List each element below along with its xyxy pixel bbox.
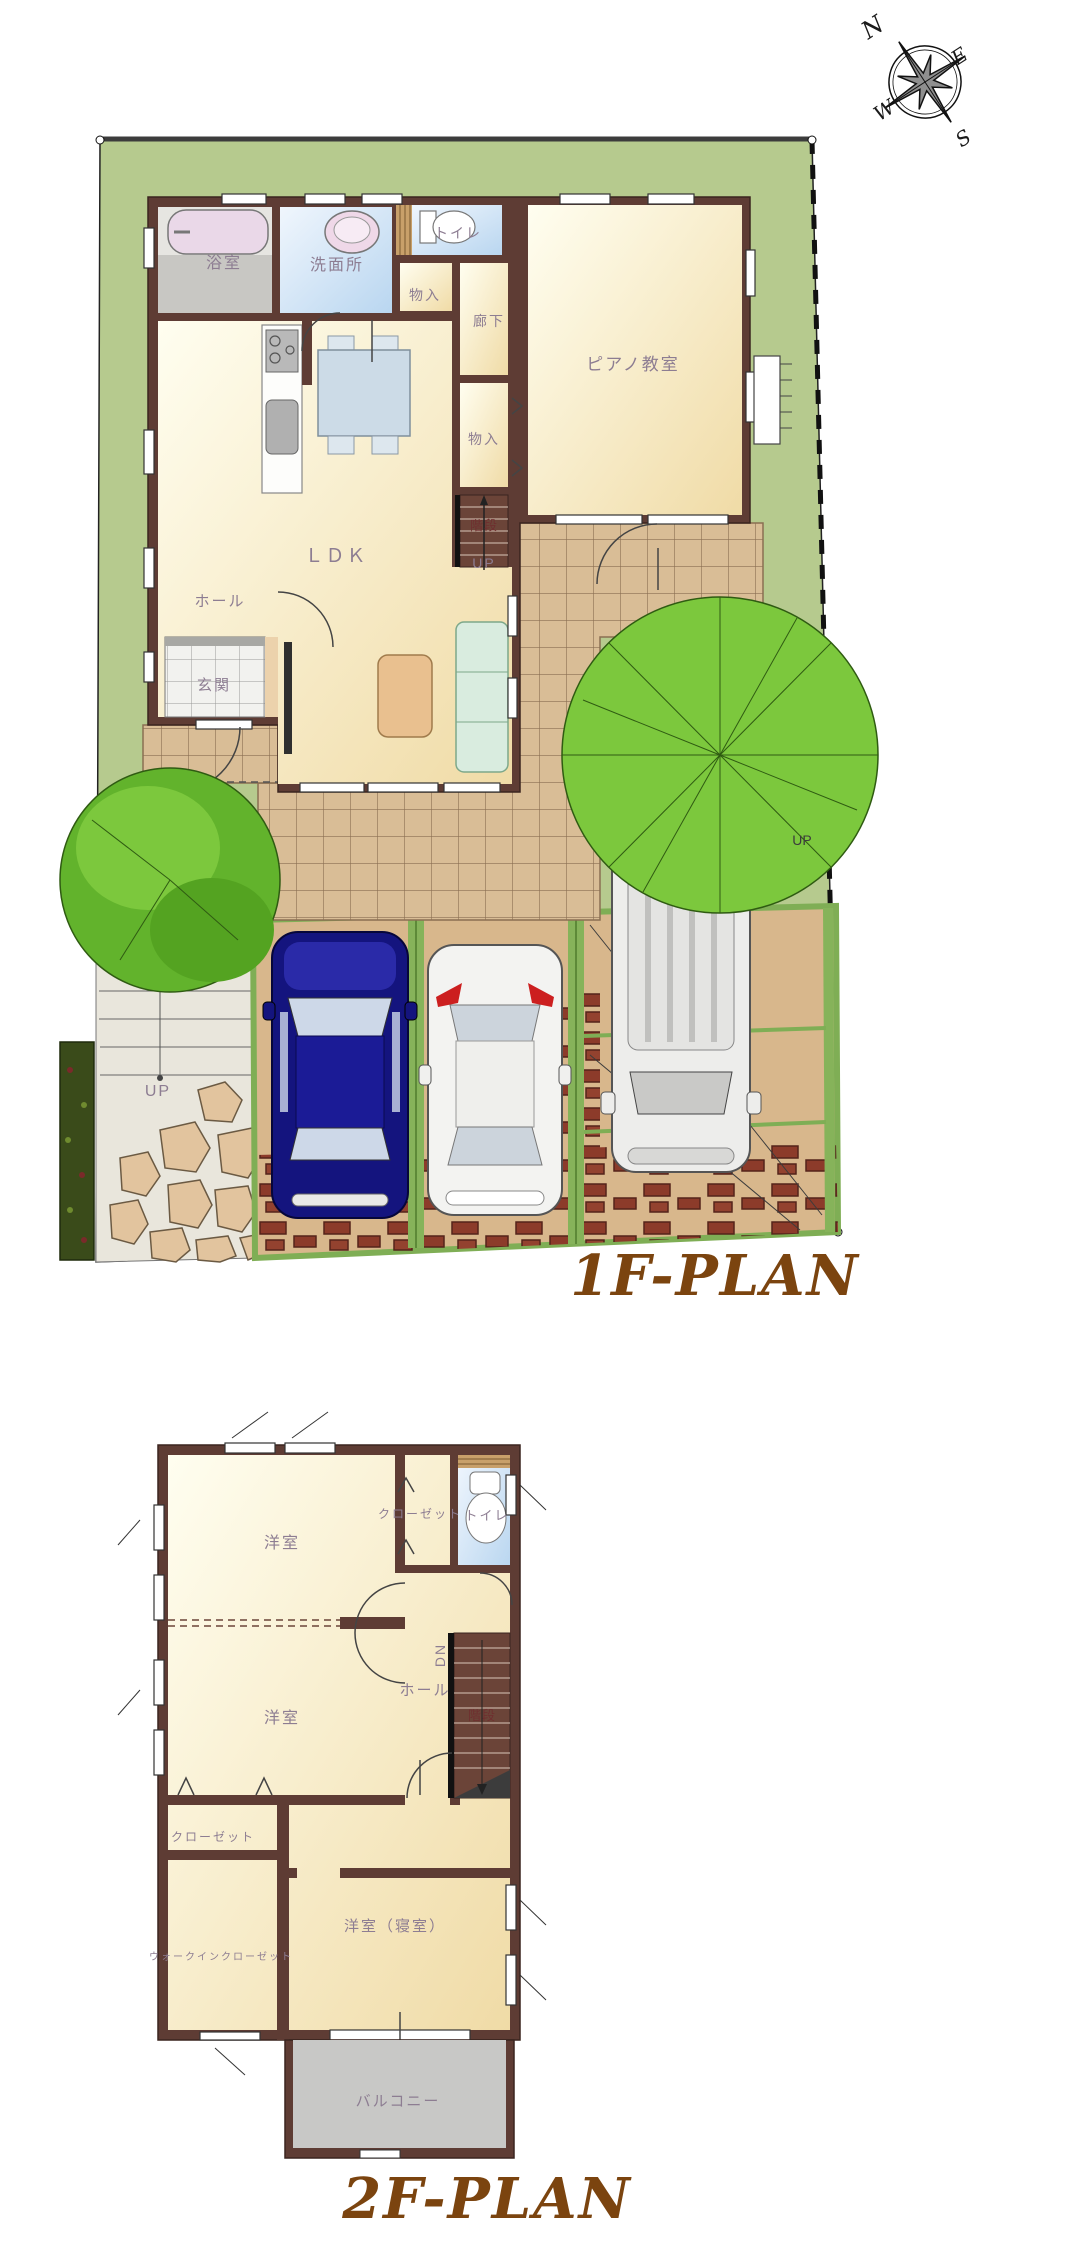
hall-1f-label: ホール [194,593,245,610]
storage-mid-label: 物入 [468,431,500,447]
living-table [378,655,432,737]
hall-2f-label: ホール [399,1682,450,1699]
washroom-label: 洗面所 [310,256,364,274]
stairs-2f-label: 階段 [468,1708,496,1723]
stairs-up-label: UP [472,555,495,571]
car-white [419,945,571,1215]
washroom-sink [325,211,379,253]
compass-rose: N E S W [855,9,991,152]
tree-large [562,597,878,913]
compass-w: W [869,94,901,126]
west-room-1-label: 洋室 [264,1534,300,1552]
dining-set [318,336,410,454]
stairs-1f-label: 階段 [470,518,498,533]
floor-plan-page: UP 浴室 洗面所 トイレ 物入 廊下 ピアノ教室 物入 階段 UP ＬＤＫ ホ… [0,0,1076,2262]
floor-plan-drawing: UP 浴室 洗面所 トイレ 物入 廊下 ピアノ教室 物入 階段 UP ＬＤＫ ホ… [0,0,1076,2262]
piano-room-label: ピアノ教室 [586,355,679,374]
tv-board [284,642,292,754]
title-1f: 1F-PLAN [570,1243,860,1309]
west-room-2-label: 洋室 [264,1709,300,1727]
approach-up-label: UP [145,1083,171,1100]
stairs-dn-label: DN [432,1643,448,1667]
car-blue [263,932,417,1218]
bath-label: 浴室 [206,254,242,272]
tree-left [60,768,280,992]
closet-top-label: クローゼット [378,1507,462,1521]
balcony-label: バルコニー [356,2093,441,2110]
compass-n: N [855,9,890,45]
sofa [456,622,508,772]
bedroom-label: 洋室（寝室） [344,1917,446,1935]
walkin-closet-label: ウォークインクローゼット [149,1951,293,1963]
title-2f: 2F-PLAN [341,2166,632,2232]
bathtub [168,210,268,254]
compass-s: S [951,124,976,152]
storage-upper-label: 物入 [409,287,441,303]
corridor-label: 廊下 [473,313,505,329]
side-up-label: UP [792,832,811,848]
house-2f [118,1412,546,2158]
toilet-2f-label: トイレ [464,1508,509,1523]
entrance-label: 玄関 [197,677,231,694]
ldk-label: ＬＤＫ [304,546,367,567]
toilet-label: トイレ [434,225,482,241]
hedge [60,1042,94,1260]
closet-left-label: クローゼット [171,1830,255,1844]
